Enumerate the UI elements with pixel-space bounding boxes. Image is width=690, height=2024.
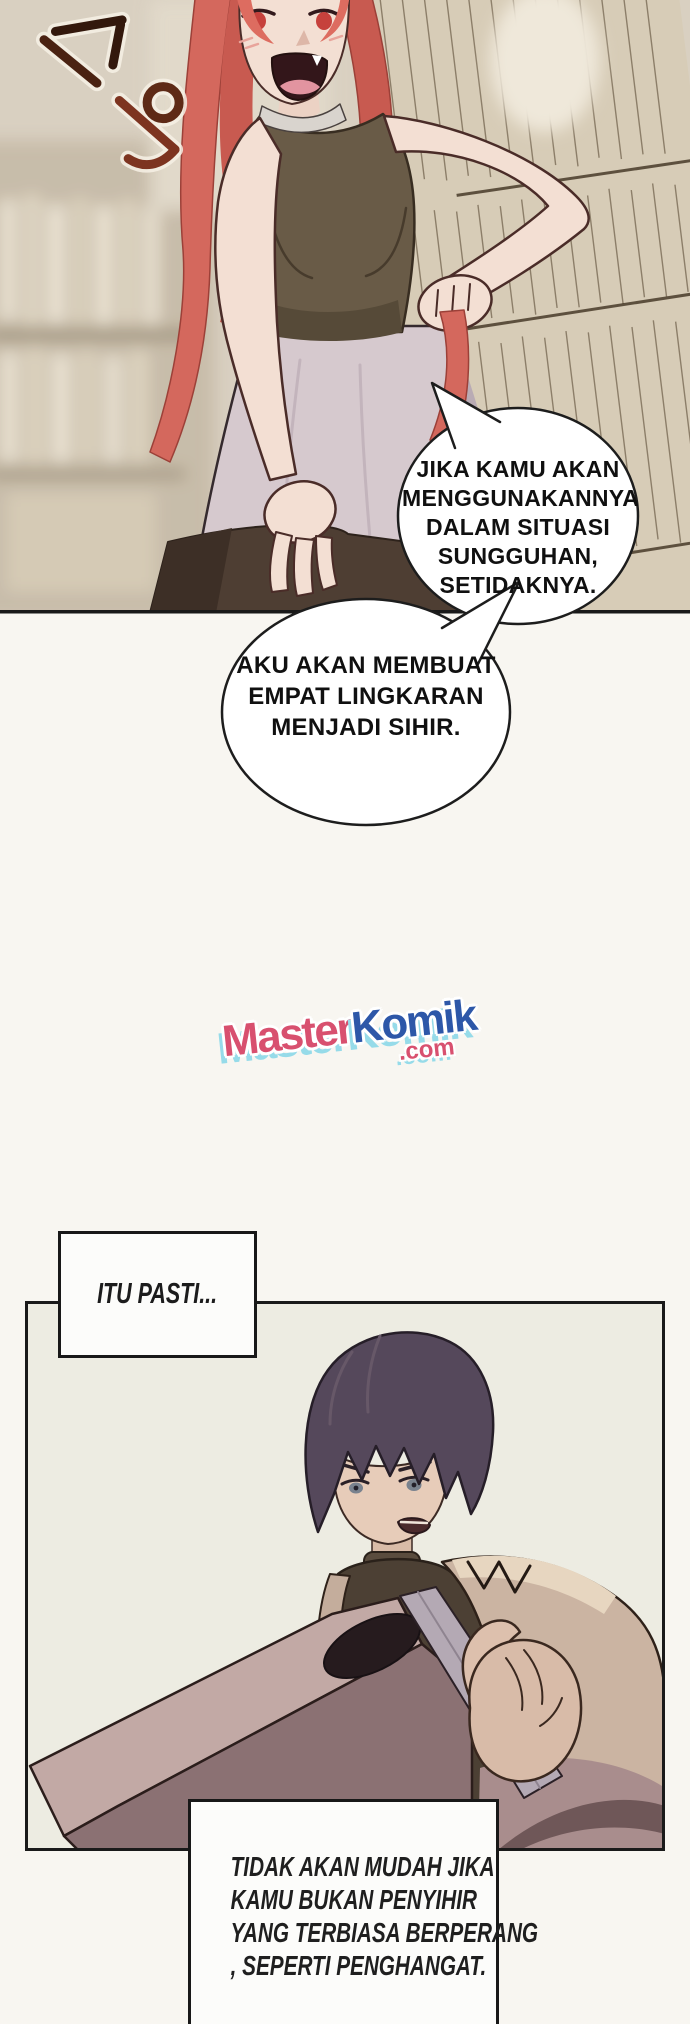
bubble-line: AKU AKAN MEMBUAT bbox=[226, 650, 506, 681]
bubble-line: EMPAT LINGKARAN bbox=[226, 681, 506, 712]
bubble-line: DALAM SITUASI bbox=[402, 513, 634, 542]
sfx-korean bbox=[30, 0, 190, 170]
speech-bubble-1-text: JIKA KAMU AKAN MENGGUNAKANNYA DALAM SITU… bbox=[402, 455, 634, 600]
bubble-line: JIKA KAMU AKAN bbox=[402, 455, 634, 484]
comic-page: JIKA KAMU AKAN MENGGUNAKANNYA DALAM SITU… bbox=[0, 0, 690, 2024]
narration-line: TIDAK AKAN MUDAH JIKA bbox=[231, 1850, 457, 1883]
narration-line: KAMU BUKAN PENYIHIR bbox=[231, 1883, 457, 1916]
bubble-line: MENJADI SIHIR. bbox=[226, 712, 506, 743]
narration-box: TIDAK AKAN MUDAH JIKA KAMU BUKAN PENYIHI… bbox=[188, 1799, 499, 2024]
bubble-line: SUNGGUHAN, bbox=[402, 542, 634, 571]
narration-line: YANG TERBIASA BERPERANG bbox=[231, 1916, 457, 1949]
caption-text: ITU PASTI... bbox=[97, 1278, 217, 1311]
panel-2-art bbox=[28, 1304, 665, 1850]
bubble-line: SETIDAKNYA. bbox=[402, 571, 634, 600]
bubble-line: MENGGUNAKANNYA bbox=[402, 484, 634, 513]
narration-line: , SEPERTI PENGHANGAT. bbox=[231, 1949, 457, 1982]
caption-box: ITU PASTI... bbox=[58, 1231, 257, 1358]
speech-bubble-2-text: AKU AKAN MEMBUAT EMPAT LINGKARAN MENJADI… bbox=[226, 650, 506, 743]
